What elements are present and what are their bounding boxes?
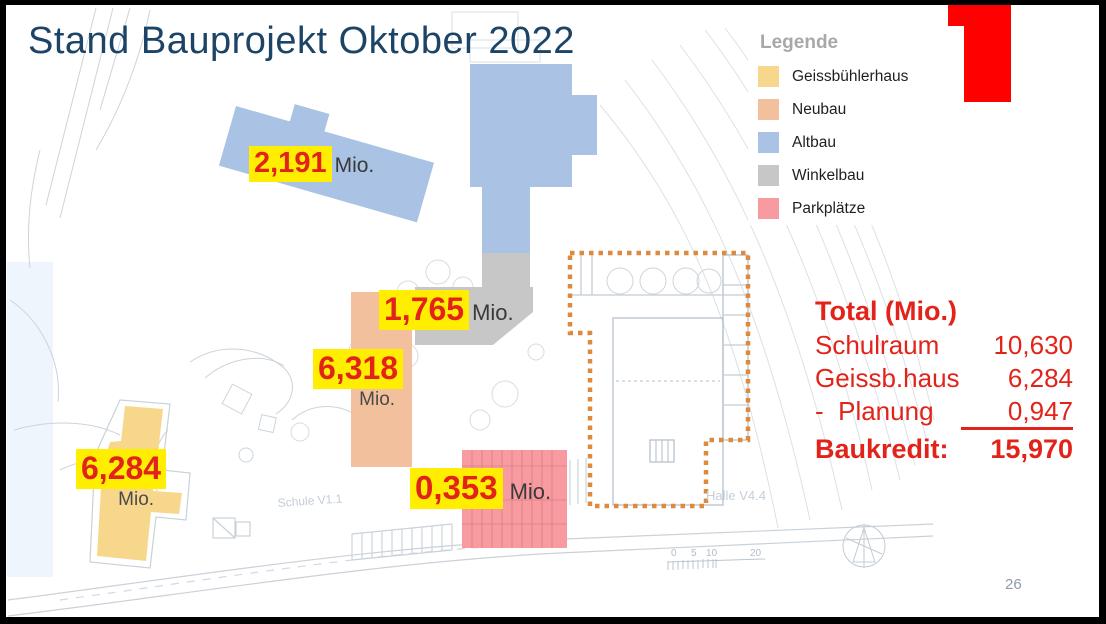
cost-unit: Mio. <box>510 479 552 504</box>
hall-tree-row <box>607 268 721 294</box>
legend-item-label: Altbau <box>792 134 836 152</box>
totals-row-value: 15,970 <box>961 435 1073 464</box>
cost-unit: Mio. <box>335 154 375 177</box>
totals-panel: Total (Mio.) Schulraum 10,630 Geissb.hau… <box>815 296 1073 464</box>
legend-color-chip <box>758 99 779 120</box>
totals-row-value: 0,947 <box>961 397 1073 430</box>
background-linework <box>10 8 540 500</box>
totals-row-geissbhaus: Geissb.haus 6,284 <box>815 364 1073 393</box>
legend-item-parkplaetze: Parkplätze <box>758 198 954 219</box>
totals-row-planung: - Planung 0,947 <box>815 397 1073 430</box>
cost-label-altbau: 2,191Mio. <box>249 146 374 182</box>
totals-title: Total (Mio.) <box>815 296 1073 327</box>
page-title: Stand Bauprojekt Oktober 2022 <box>28 20 575 63</box>
map-label-schule: Schule V1.1 <box>277 491 343 510</box>
legend-item-label: Neubau <box>792 101 846 119</box>
cost-unit: Mio. <box>76 489 166 511</box>
totals-row-value: 6,284 <box>961 364 1073 393</box>
slide-frame: 0 5 10 20 <box>0 0 1106 624</box>
cost-unit: Mio. <box>472 300 514 325</box>
legend-item-label: Parkplätze <box>792 200 865 218</box>
cost-label-geissbuehlerhaus: 6,284Mio. <box>76 449 166 511</box>
cost-unit: Mio. <box>313 389 403 411</box>
legend-item-label: Geissbühlerhaus <box>792 68 908 86</box>
legend-panel: Legende Geissbühlerhaus Neubau Altbau Wi… <box>748 26 964 225</box>
left-accent-wash <box>7 262 53 577</box>
legend-title: Legende <box>760 32 954 54</box>
cost-value: 0,353 <box>410 468 503 509</box>
cost-value: 6,284 <box>76 449 166 489</box>
legend-item-altbau: Altbau <box>758 132 954 153</box>
totals-row-label: Geissb.haus <box>815 364 961 393</box>
scale-tick-20: 20 <box>750 548 762 559</box>
construction-boundary-dashed <box>570 253 748 506</box>
scale-tick-10: 10 <box>706 548 718 559</box>
legend-color-chip <box>758 198 779 219</box>
totals-row-baukredit: Baukredit: 15,970 <box>815 435 1073 464</box>
cost-label-parkplaetze: 0,353Mio. <box>410 468 551 509</box>
legend-item-winkelbau: Winkelbau <box>758 165 954 186</box>
legend-item-label: Winkelbau <box>792 167 864 185</box>
cost-value: 1,765 <box>379 290 469 330</box>
cost-value: 2,191 <box>249 146 332 182</box>
north-compass-icon <box>843 524 885 568</box>
legend-color-chip <box>758 66 779 87</box>
cost-label-neubau: 6,318Mio. <box>313 349 403 411</box>
totals-row-label: - Planung <box>815 397 961 426</box>
building-altbau-main <box>470 64 597 253</box>
legend-color-chip <box>758 132 779 153</box>
scale-tick-5: 5 <box>691 548 697 559</box>
cost-label-winkelbau: 1,765Mio. <box>379 290 514 330</box>
legend-item-geissbuehlerhaus: Geissbühlerhaus <box>758 66 954 87</box>
totals-row-label: Schulraum <box>815 331 961 360</box>
totals-row-schulraum: Schulraum 10,630 <box>815 331 1073 360</box>
scale-bar <box>668 559 765 570</box>
map-label-halle: Halle V4.4 <box>706 488 766 503</box>
page-number: 26 <box>1005 576 1022 593</box>
scale-tick-0: 0 <box>671 548 677 559</box>
totals-row-label: Baukredit: <box>815 435 961 464</box>
cost-value: 6,318 <box>313 349 403 389</box>
legend-item-neubau: Neubau <box>758 99 954 120</box>
totals-row-value: 10,630 <box>961 331 1073 360</box>
legend-color-chip <box>758 165 779 186</box>
